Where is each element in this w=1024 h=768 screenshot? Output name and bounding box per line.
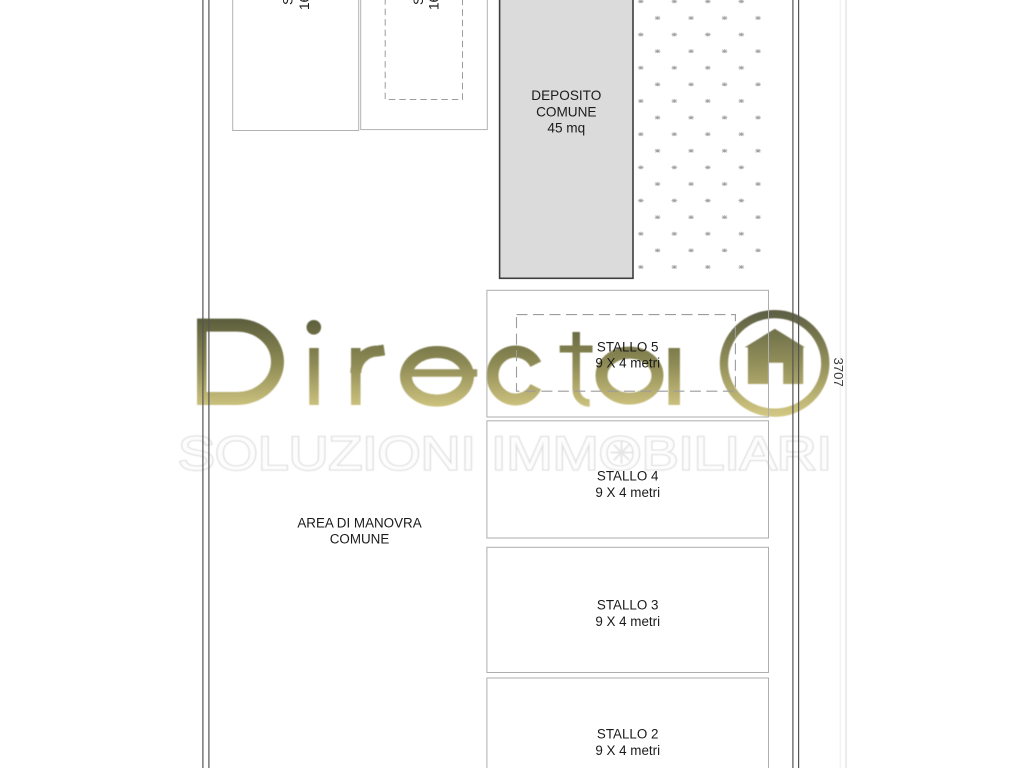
svg-text:DEPOSITO: DEPOSITO	[531, 88, 601, 103]
svg-text:COMUNE: COMUNE	[330, 531, 390, 546]
svg-text:9 X 4 metri: 9 X 4 metri	[595, 356, 660, 371]
svg-text:STALLO 5: STALLO 5	[597, 339, 659, 354]
svg-text:9 X 4 metri: 9 X 4 metri	[595, 485, 660, 500]
svg-text:16 mq: 16 mq	[427, 0, 442, 10]
svg-text:STALLO 2: STALLO 2	[597, 727, 659, 742]
svg-text:STALLO 4: STALLO 4	[597, 469, 659, 484]
svg-text:SOLUZIONI IMMOBILIARI: SOLUZIONI IMMOBILIARI	[178, 428, 832, 481]
svg-text:STALLO 7: STALLO 7	[281, 0, 296, 5]
svg-text:9 X 4 metri: 9 X 4 metri	[595, 743, 660, 758]
svg-text:STALLO 6: STALLO 6	[411, 0, 426, 5]
svg-text:COMUNE: COMUNE	[536, 104, 596, 119]
svg-text:AREA DI MANOVRA: AREA DI MANOVRA	[297, 515, 421, 530]
svg-text:STALLO 3: STALLO 3	[597, 598, 659, 613]
svg-text:45 mq: 45 mq	[547, 121, 585, 136]
svg-text:16 mq: 16 mq	[297, 0, 312, 10]
svg-text:9 X 4 metri: 9 X 4 metri	[595, 614, 660, 629]
svg-text:3707: 3707	[831, 358, 846, 387]
